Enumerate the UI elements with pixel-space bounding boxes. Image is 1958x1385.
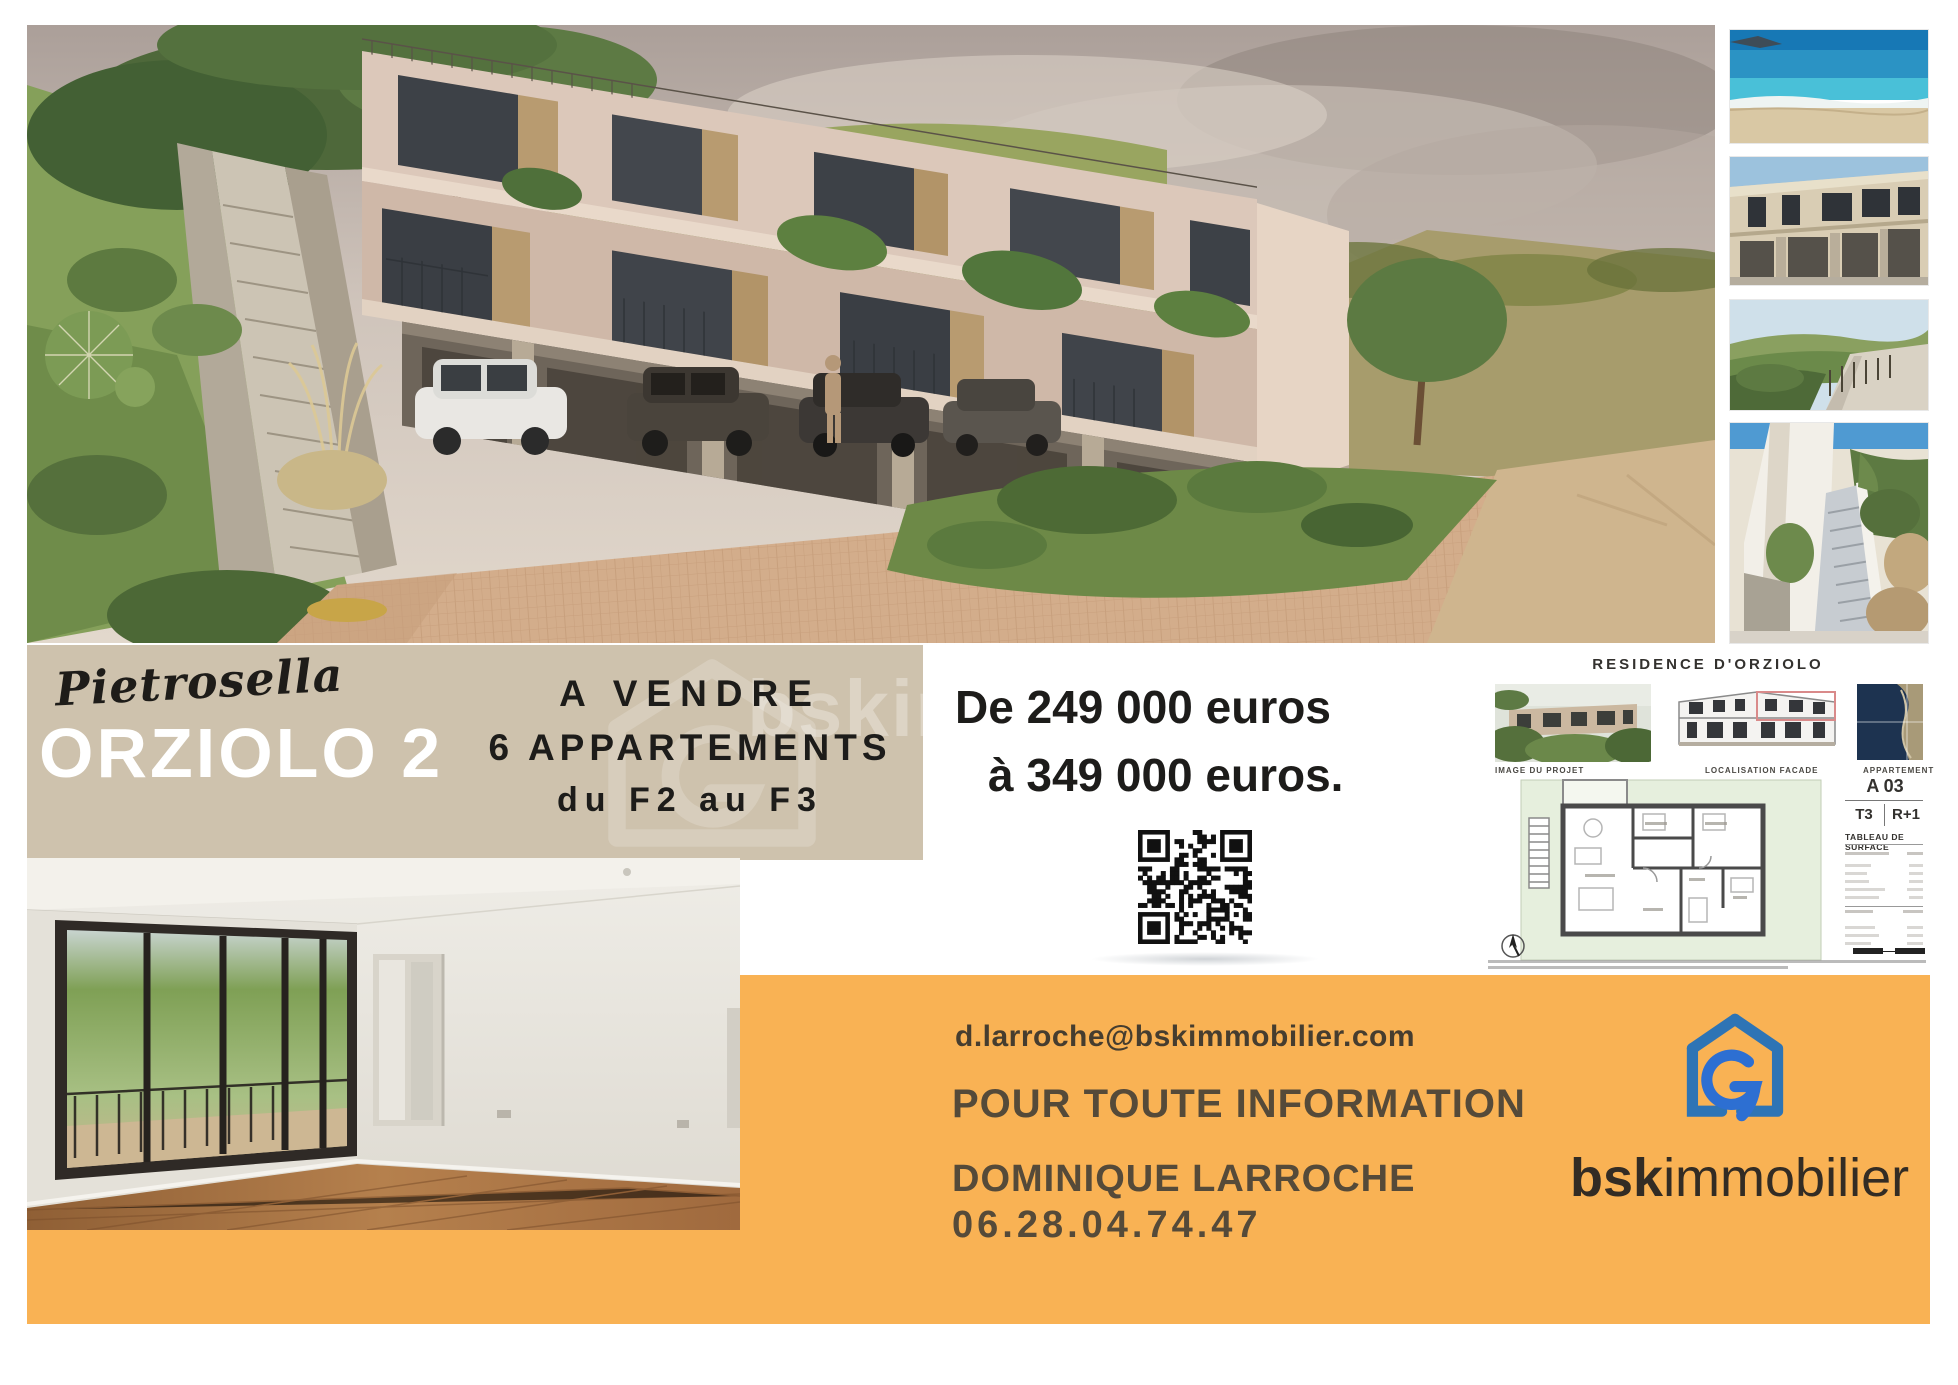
divider bbox=[1845, 906, 1923, 907]
label-image-du-projet: IMAGE DU PROJET bbox=[1495, 766, 1584, 775]
apartment-type: T3 bbox=[1845, 806, 1883, 823]
sale-announcement: A VENDRE 6 APPARTEMENTS du F2 au F3 bbox=[457, 673, 923, 820]
sale-line-2: 6 APPARTEMENTS bbox=[457, 727, 923, 769]
contact-phone: 06.28.04.74.47 bbox=[952, 1204, 1262, 1247]
scale-bar bbox=[1883, 951, 1895, 952]
qr-shadow bbox=[1090, 952, 1320, 966]
price-from: De 249 000 euros bbox=[955, 680, 1331, 734]
program-title: ORZIOLO 2 bbox=[39, 713, 443, 793]
brand-logo: bskimmobilier bbox=[1570, 1012, 1900, 1209]
brand-house-icon bbox=[1679, 1012, 1791, 1132]
floor-plan-drawing bbox=[1493, 778, 1833, 968]
contact-name: DOMINIQUE LARROCHE bbox=[952, 1158, 1415, 1201]
legal-fine-print bbox=[1488, 966, 1788, 969]
label-localisation-facade: LOCALISATION FACADE bbox=[1705, 766, 1819, 775]
brand-name-bold: bsk bbox=[1570, 1148, 1663, 1208]
photo-landscape-view bbox=[1730, 300, 1928, 410]
sale-line-1: A VENDRE bbox=[457, 673, 923, 715]
person-silhouette bbox=[825, 355, 841, 443]
photo-exterior-stairs bbox=[1730, 423, 1928, 643]
flyer-page: bskimmobilier Pietrosella ORZIOLO 2 A VE… bbox=[0, 0, 1958, 1385]
plan-facade-elevation bbox=[1673, 684, 1841, 758]
location-name: Pietrosella bbox=[54, 647, 345, 716]
scale-bar bbox=[1895, 948, 1925, 954]
plan-location-map bbox=[1857, 684, 1923, 760]
divider bbox=[1845, 800, 1923, 801]
brand-name: bskimmobilier bbox=[1570, 1147, 1900, 1209]
hero-render-image bbox=[27, 25, 1715, 643]
plan-document: RESIDENCE D'ORZIOLO bbox=[1483, 648, 1933, 975]
plan-doc-title: RESIDENCE D'ORZIOLO bbox=[1483, 656, 1933, 673]
photo-beach bbox=[1730, 30, 1928, 143]
contact-heading: POUR TOUTE INFORMATION bbox=[952, 1082, 1526, 1127]
photo-building-facade bbox=[1730, 157, 1928, 285]
price-to: à 349 000 euros. bbox=[988, 748, 1343, 802]
divider bbox=[1884, 804, 1885, 826]
apartment-code: A 03 bbox=[1845, 776, 1925, 797]
contact-email: d.larroche@bskimmobilier.com bbox=[955, 1020, 1415, 1054]
plan-project-photo bbox=[1495, 684, 1651, 762]
scale-bar bbox=[1853, 948, 1883, 954]
interior-photo bbox=[27, 858, 740, 1230]
sale-line-3: du F2 au F3 bbox=[457, 781, 923, 820]
label-appartement: APPARTEMENT bbox=[1863, 766, 1934, 775]
brand-name-rest: immobilier bbox=[1663, 1148, 1909, 1208]
legal-fine-print bbox=[1488, 960, 1926, 963]
title-band: bskimmobilier Pietrosella ORZIOLO 2 A VE… bbox=[27, 645, 923, 860]
divider bbox=[1845, 844, 1923, 845]
apartment-floor: R+1 bbox=[1887, 806, 1925, 823]
qr-code bbox=[1138, 830, 1252, 944]
surface-table-title: TABLEAU DE SURFACE bbox=[1845, 832, 1925, 852]
